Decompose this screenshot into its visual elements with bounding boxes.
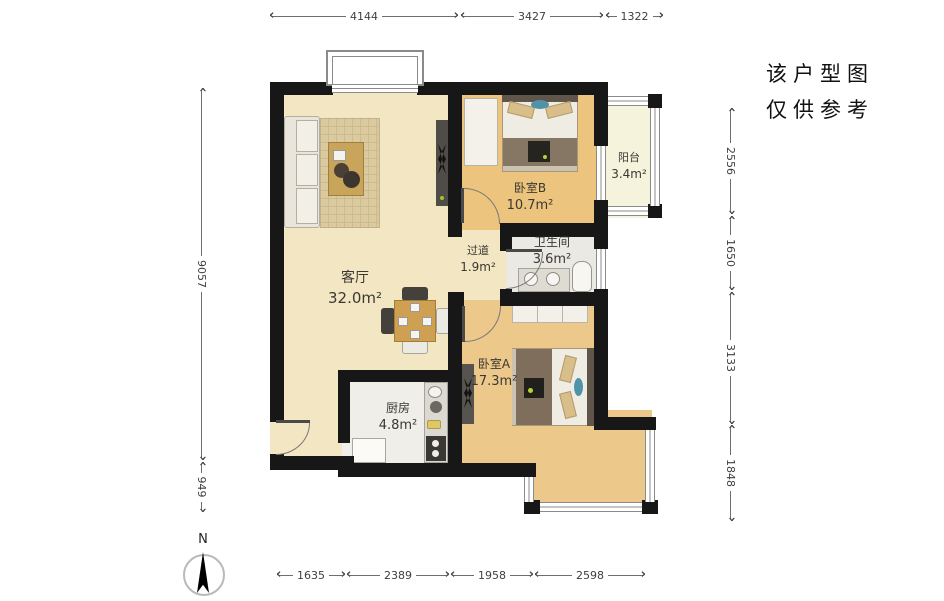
sink-bowl bbox=[546, 272, 560, 286]
kitchen-sink bbox=[428, 386, 442, 398]
dimension-top-1: ‹4144› bbox=[270, 8, 458, 24]
tv-panel-living bbox=[436, 120, 448, 206]
bench-dot bbox=[543, 155, 547, 159]
wall bbox=[338, 370, 450, 382]
dimension-right-1: ‹2556› bbox=[723, 108, 739, 214]
dim-value: 3427 bbox=[514, 10, 550, 23]
window bbox=[596, 249, 606, 289]
sofa-cushion bbox=[296, 188, 318, 224]
dimension-right-2: ‹1650› bbox=[723, 216, 739, 290]
dim-line bbox=[273, 16, 346, 17]
dim-value: 1848 bbox=[725, 455, 738, 491]
bay-window-inner-frame bbox=[332, 56, 418, 86]
dim-line bbox=[510, 575, 530, 576]
bay-window-frame bbox=[326, 50, 424, 86]
wall-post bbox=[524, 500, 540, 514]
dimension-right-4: ‹1848› bbox=[723, 425, 739, 521]
dimension-top-3: ‹1322› bbox=[606, 8, 663, 24]
dim-line bbox=[280, 575, 293, 576]
dining-chair bbox=[402, 340, 428, 354]
wall bbox=[594, 417, 656, 430]
dim-value: 9057 bbox=[196, 256, 209, 292]
wall-post bbox=[648, 204, 662, 218]
dim-line bbox=[731, 491, 732, 518]
room-area: 1.9m² bbox=[450, 259, 506, 276]
wall bbox=[594, 223, 608, 249]
dim-value: 1322 bbox=[617, 10, 653, 23]
room-label-bedroom-b: 卧室B 10.7m² bbox=[492, 180, 568, 216]
window bbox=[608, 96, 648, 106]
coffee-table-tray bbox=[333, 150, 346, 161]
dimension-top-2: ‹3427› bbox=[461, 8, 603, 24]
dim-value: 1635 bbox=[293, 569, 329, 582]
dimension-bottom-1: ‹1635› bbox=[277, 567, 345, 583]
sofa-cushion bbox=[296, 154, 318, 186]
wall bbox=[594, 95, 608, 146]
dim-line bbox=[538, 575, 572, 576]
dimension-left-2: ‹949› bbox=[194, 462, 210, 512]
dim-line bbox=[416, 575, 446, 576]
wall bbox=[270, 82, 332, 95]
dim-arrow-icon: › bbox=[724, 517, 738, 522]
room-area: 32.0m² bbox=[300, 288, 410, 310]
bed-bench-b bbox=[528, 141, 550, 162]
dim-line bbox=[202, 91, 203, 256]
window bbox=[596, 146, 606, 200]
room-label-bathroom: 卫生间 3.6m² bbox=[514, 234, 590, 270]
wall bbox=[594, 306, 608, 430]
room-name: 卧室B bbox=[492, 180, 568, 197]
floorplan-page: 客厅 32.0m² 过道 1.9m² 卧室B 10.7m² 阳台 3.4m² 卫… bbox=[0, 0, 944, 601]
coffee-table-decor bbox=[343, 171, 360, 188]
dim-line bbox=[731, 376, 732, 421]
room-label-bedroom-a: 卧室A 17.3m² bbox=[452, 356, 536, 392]
disclaimer-line-2: 仅供参考 bbox=[766, 92, 906, 128]
wall bbox=[270, 82, 284, 422]
dim-line bbox=[550, 16, 600, 17]
sofa-cushion bbox=[296, 120, 318, 152]
burner bbox=[432, 450, 439, 457]
window bbox=[608, 206, 648, 216]
dim-value: 1958 bbox=[474, 569, 510, 582]
wall-post bbox=[648, 94, 662, 108]
blanket-b-foot bbox=[503, 166, 577, 171]
room-label-kitchen: 厨房 4.8m² bbox=[362, 400, 434, 436]
wall bbox=[500, 289, 512, 306]
dim-line bbox=[731, 428, 732, 455]
wall bbox=[338, 374, 350, 443]
dimension-left-1: ‹9057› bbox=[194, 88, 210, 460]
pillow-accent bbox=[574, 378, 583, 396]
room-label-hallway: 过道 1.9m² bbox=[450, 243, 506, 276]
room-label-balcony: 阳台 3.4m² bbox=[606, 150, 652, 183]
room-area: 3.6m² bbox=[514, 251, 590, 270]
room-name: 过道 bbox=[450, 243, 506, 259]
window bbox=[332, 84, 418, 93]
dim-line bbox=[731, 111, 732, 143]
dimension-bottom-3: ‹1958› bbox=[451, 567, 533, 583]
dim-value: 3133 bbox=[725, 340, 738, 376]
dimension-bottom-4: ‹2598› bbox=[535, 567, 645, 583]
dim-line bbox=[608, 575, 642, 576]
wardrobe-bedroom-b bbox=[464, 98, 498, 166]
burner bbox=[432, 440, 439, 447]
wall bbox=[418, 82, 608, 95]
dimension-right-3: ‹3133› bbox=[723, 292, 739, 424]
dim-line bbox=[731, 271, 732, 287]
compass-north-label: N bbox=[188, 532, 218, 547]
dim-value: 4144 bbox=[346, 10, 382, 23]
room-area: 3.4m² bbox=[606, 166, 652, 183]
dim-value: 949 bbox=[196, 473, 209, 502]
wall bbox=[594, 289, 608, 306]
wall bbox=[594, 200, 608, 223]
room-area: 4.8m² bbox=[362, 417, 434, 436]
wall bbox=[448, 223, 462, 237]
dim-line bbox=[464, 16, 514, 17]
window bbox=[524, 477, 534, 502]
fridge bbox=[352, 438, 386, 463]
dim-value: 2598 bbox=[572, 569, 608, 582]
dim-line bbox=[731, 295, 732, 340]
room-name: 厨房 bbox=[362, 400, 434, 417]
room-name: 卫生间 bbox=[514, 234, 590, 251]
dim-arrow-icon: › bbox=[641, 568, 646, 582]
dim-arrow-icon: › bbox=[659, 9, 664, 23]
plate bbox=[398, 317, 408, 326]
disclaimer-note: 该户型图 仅供参考 bbox=[766, 56, 906, 128]
dim-value: 1650 bbox=[725, 235, 738, 271]
tv-power-dot bbox=[440, 196, 444, 200]
wall bbox=[448, 95, 462, 226]
plate bbox=[422, 317, 432, 326]
plate bbox=[410, 330, 420, 339]
dim-line bbox=[609, 16, 616, 17]
dim-arrow-icon: › bbox=[195, 508, 209, 513]
plate bbox=[410, 303, 420, 312]
dining-chair bbox=[381, 308, 395, 334]
dim-line bbox=[350, 575, 380, 576]
window bbox=[540, 502, 642, 512]
dim-value: 2556 bbox=[725, 143, 738, 179]
room-area: 17.3m² bbox=[452, 373, 536, 392]
dim-line bbox=[202, 465, 203, 472]
room-name: 阳台 bbox=[606, 150, 652, 166]
room-area: 10.7m² bbox=[492, 197, 568, 216]
room-label-living: 客厅 32.0m² bbox=[300, 268, 410, 310]
room-name: 卧室A bbox=[452, 356, 536, 373]
wall-post bbox=[642, 500, 658, 514]
dim-line bbox=[454, 575, 474, 576]
disclaimer-line-1: 该户型图 bbox=[766, 56, 906, 92]
dimension-bottom-2: ‹2389› bbox=[347, 567, 449, 583]
wall bbox=[338, 463, 536, 477]
dim-line bbox=[731, 179, 732, 211]
room-name: 客厅 bbox=[300, 268, 410, 288]
wall bbox=[448, 292, 464, 306]
dim-line bbox=[202, 292, 203, 457]
window bbox=[645, 430, 655, 502]
dim-value: 2389 bbox=[380, 569, 416, 582]
wall bbox=[500, 292, 608, 306]
dim-arrow-icon: › bbox=[599, 9, 604, 23]
dim-arrow-icon: › bbox=[454, 9, 459, 23]
dim-line bbox=[731, 219, 732, 235]
headboard-a bbox=[587, 348, 594, 426]
pillow-accent bbox=[531, 100, 549, 109]
dim-line bbox=[382, 16, 455, 17]
